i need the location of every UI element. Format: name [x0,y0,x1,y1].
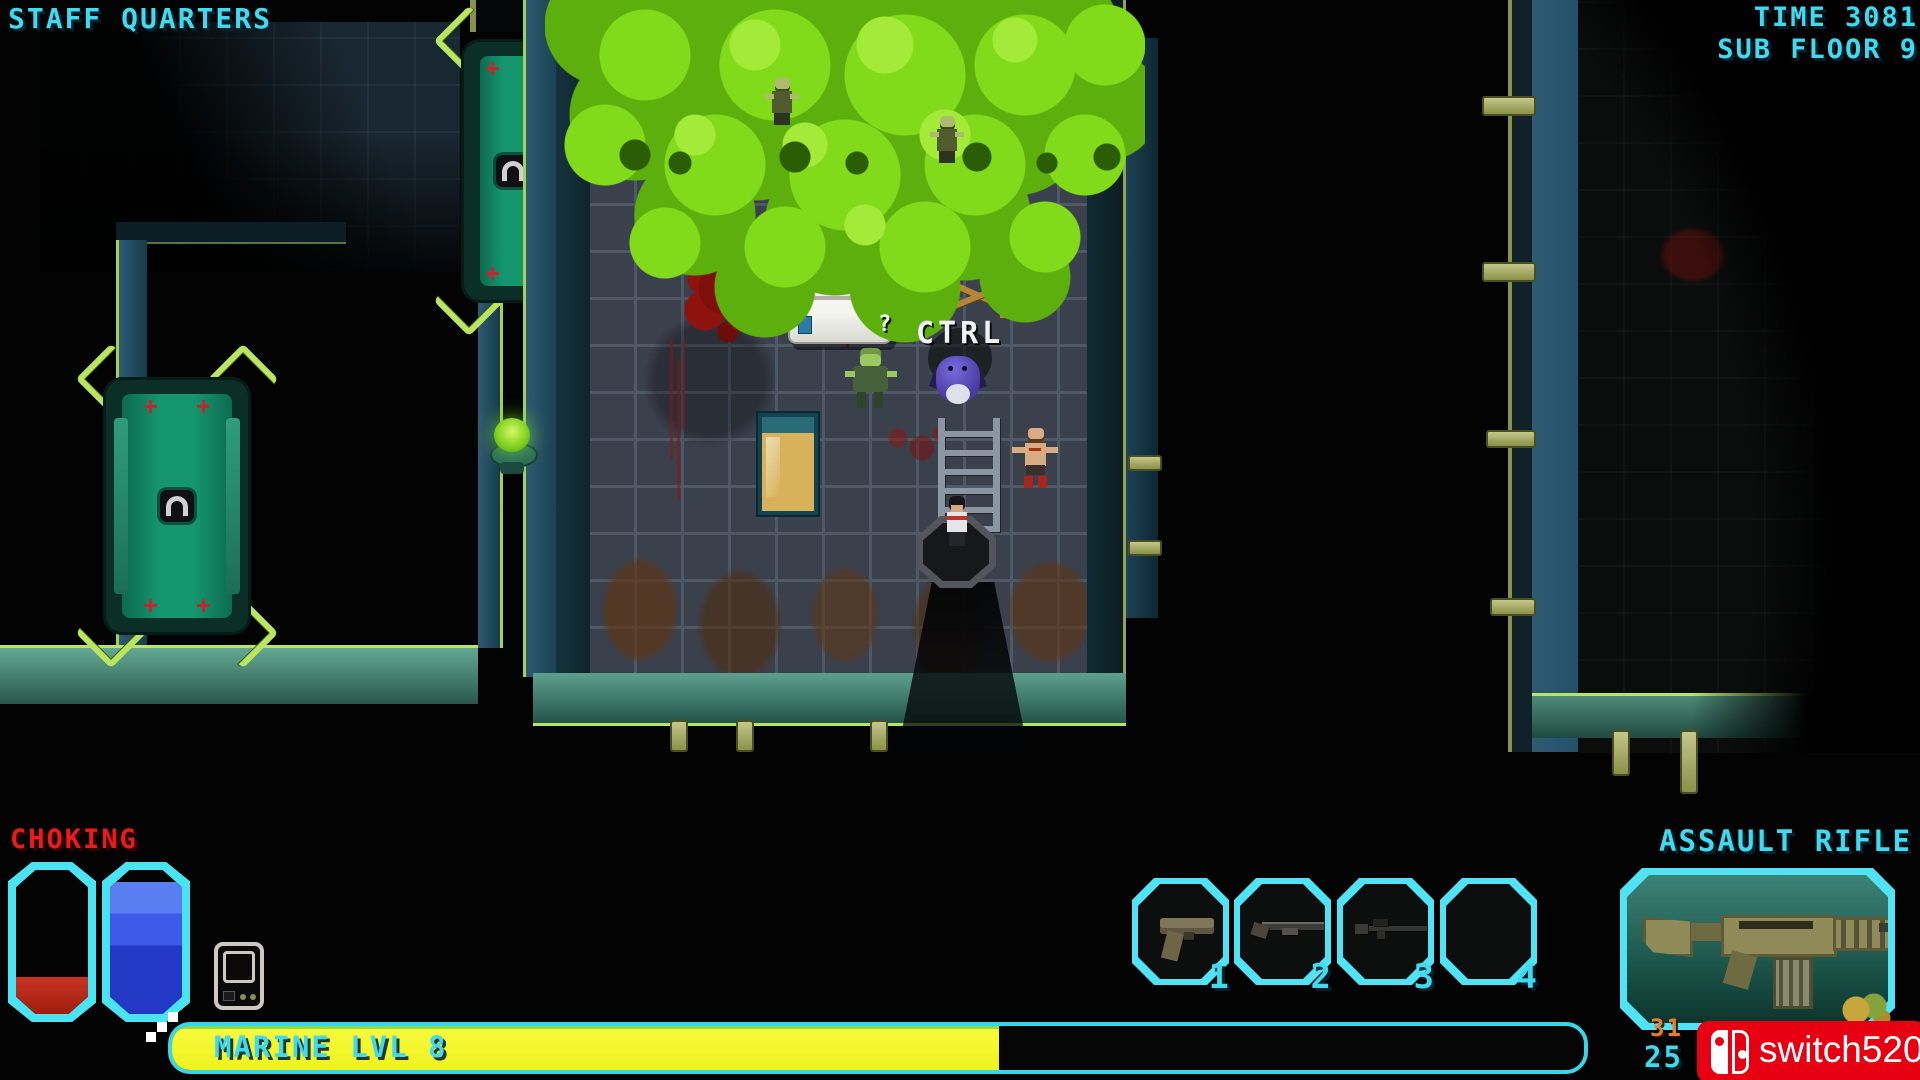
right-room-south-wall [1532,693,1822,738]
watermark-text: switch520 [1759,1029,1920,1071]
wall-pipe [1490,598,1536,616]
plant-glow [494,418,530,452]
energy-bar-fill [110,882,182,1014]
xp-label: MARINE LVL 8 [214,1030,448,1064]
wall-pipe [1128,540,1162,556]
health-bar-track [16,870,88,1014]
room-wall-south [533,673,1126,726]
door-west[interactable] [102,368,252,644]
door-rail [114,418,128,594]
xp-bar: MARINE LVL 8 [168,1022,1588,1074]
door-panel [122,394,232,618]
player-character [938,496,976,556]
door-frame [106,380,248,632]
door-bolt [144,599,157,612]
gadget-icon[interactable] [214,942,264,1010]
alien-spore-plant [486,418,538,476]
time-label: TIME 3081 [1754,2,1918,33]
left-room-south-wall-2 [348,645,478,704]
door-bolt [197,400,210,413]
wall-pipe [1482,262,1536,282]
wall-pipe [1128,455,1162,471]
weapon-slot-4[interactable]: 4 [1440,878,1537,985]
wall-pipe [870,720,888,752]
slot-number: 4 [1517,957,1539,997]
weapon-name-label: ASSAULT RIFLE [1659,824,1912,858]
zombie-enemy [1012,428,1058,490]
location-label: STAFF QUARTERS [8,2,272,35]
ammo-reserve-count: 31 [1650,1014,1683,1042]
right-room-dark-interior [1578,0,1920,753]
subfloor-label: SUB FLOOR 9 [1717,34,1918,65]
door-bolt [486,267,499,280]
wall-pipe [736,720,754,752]
left-room-south-wall [0,645,348,704]
right-room-wall-band [1532,0,1578,752]
door-bolt [197,599,210,612]
alien-creature [932,350,984,412]
ammo-magazine-count: 25 [1644,1040,1683,1074]
door-handle-icon [160,490,194,522]
weapon-slot-1[interactable]: 1 [1132,878,1229,985]
health-bar [8,862,96,1022]
wall-pipe [1482,96,1536,116]
energy-bar-track [110,870,182,1014]
door-rail [226,418,240,594]
zombie-in-gas [765,78,799,128]
weapon-slot-2[interactable]: 2 [1234,878,1331,985]
interact-prompt-label: CTRL [916,316,1004,351]
wall-pipe [670,720,688,752]
left-room-top-wall [116,222,346,244]
display-case[interactable] [758,413,818,515]
energy-bar [102,862,190,1022]
blood-streaks [668,340,688,500]
slot-number: 2 [1311,957,1333,997]
switch-logo-icon-right [1732,1030,1749,1074]
loot-hint-label: ? [878,312,893,337]
watermark-badge: switch520 [1697,1021,1920,1080]
door-bolt [144,400,157,413]
weapon-slot-3[interactable]: 3 [1337,878,1434,985]
floor-pipe [1612,730,1630,776]
switch-logo-icon [1711,1030,1728,1074]
status-effect-label: CHOKING [10,824,138,855]
slot-number: 3 [1414,957,1436,997]
slot-number: 1 [1209,957,1231,997]
health-bar-fill [16,977,88,1014]
toxic-gas-cloud [545,0,1145,345]
game-viewport: ? CTRL STAFF QUARTERS TIME 3081 SUB FLOO… [0,0,1920,1080]
floor-pipe [1680,730,1698,794]
door-bolt [486,62,499,75]
mutant-enemy [845,348,897,412]
plant-base [500,462,524,474]
zombie-in-gas [930,116,964,166]
wall-pipe [1486,430,1536,448]
